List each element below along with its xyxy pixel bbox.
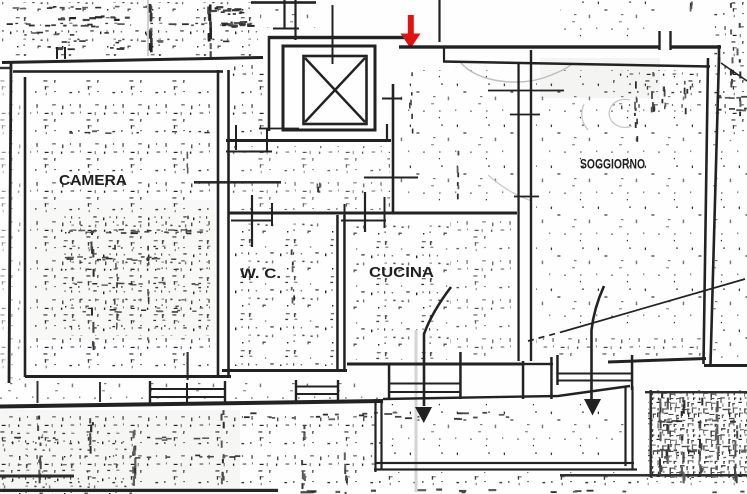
svg-text:CUCINA: CUCINA bbox=[369, 265, 435, 281]
svg-text:SOGGIORNO: SOGGIORNO bbox=[580, 156, 645, 172]
svg-text:W. C.: W. C. bbox=[240, 265, 281, 281]
svg-text:CAMERA: CAMERA bbox=[59, 172, 127, 189]
